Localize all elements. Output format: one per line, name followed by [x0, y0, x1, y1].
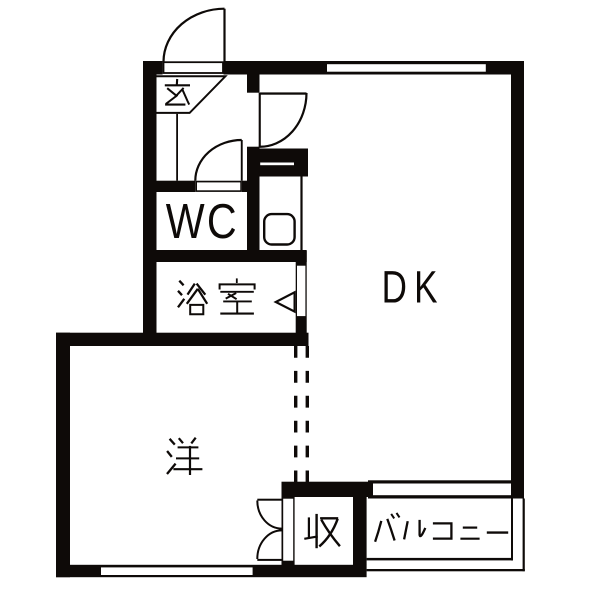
- svg-text:WC: WC: [166, 194, 239, 249]
- svg-text:DK: DK: [382, 261, 445, 313]
